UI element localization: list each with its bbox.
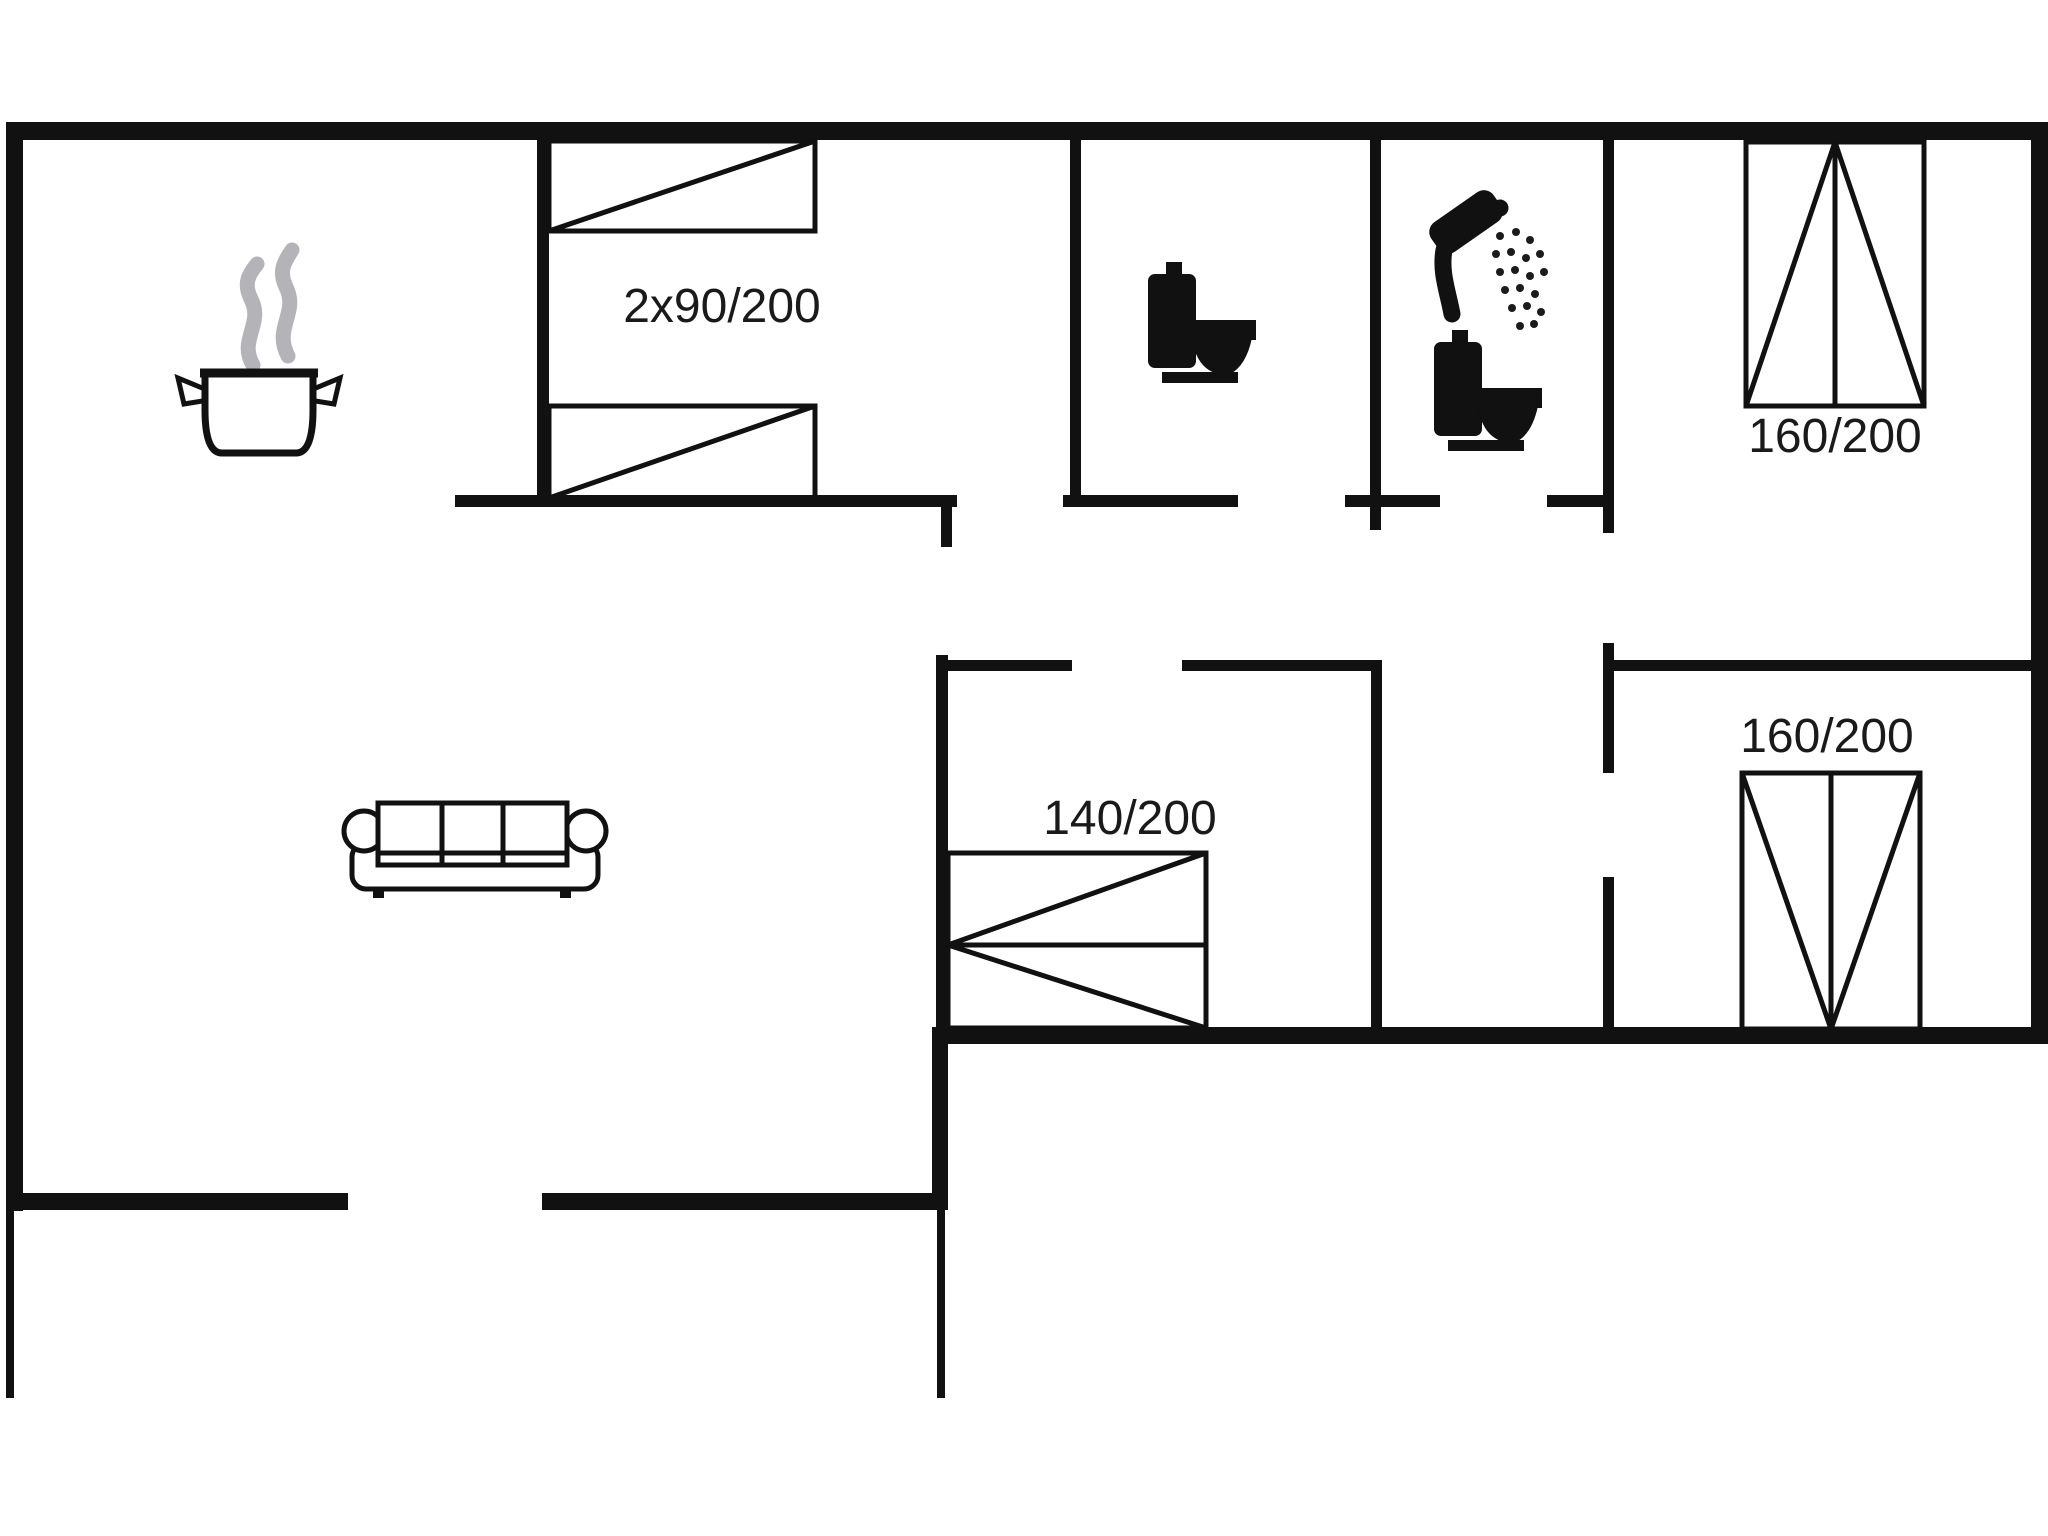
floor-plan: 2x90/200 160/200 160/200 140/200	[0, 0, 2048, 1536]
wall-rightrooms-divider	[1603, 660, 2040, 671]
wall-centerroom-right	[1371, 660, 1382, 1031]
bed-label-top-left: 2x90/200	[623, 280, 821, 333]
sofa-armrest-right	[566, 811, 606, 851]
bed-label-top-right: 160/200	[1748, 410, 1922, 463]
bed-double-top-right	[1746, 142, 1924, 406]
bed-single-a	[549, 141, 815, 231]
cooking-pot-icon	[178, 250, 340, 453]
wall-wc-bottom	[1063, 495, 1238, 507]
wall-bottom-connector	[932, 1027, 948, 1210]
wall-rightrooms-left-top	[1603, 140, 1614, 533]
wall-rightrooms-left-bottom	[1603, 877, 1614, 1031]
bed-label-center: 140/200	[1043, 792, 1217, 845]
interior-walls	[455, 140, 2040, 1031]
wall-bottom-left-b	[542, 1193, 948, 1210]
steam-wave-1	[247, 264, 257, 365]
wall-hallway-bottom-b	[1182, 660, 1377, 671]
wall-hallway-bottom-a	[936, 660, 1072, 671]
wall-bathroom-bottom-left	[1345, 495, 1440, 507]
terrace-lines	[6, 1210, 945, 1398]
shower-icon	[1425, 185, 1548, 330]
bed-label-mid-right: 160/200	[1740, 710, 1914, 763]
floor-plan-canvas: 2x90/200 160/200 160/200 140/200	[0, 0, 2048, 1536]
bed-double-center	[948, 853, 1206, 1028]
sofa-icon	[344, 803, 606, 898]
wall-bottom-left-a	[6, 1193, 348, 1210]
bed-single-b	[549, 406, 815, 498]
terrace-edge-right	[937, 1210, 945, 1398]
toilet-icon	[1148, 262, 1256, 383]
pot-body	[205, 374, 313, 453]
wall-right	[2031, 122, 2048, 1044]
steam-wave-2	[282, 250, 292, 356]
terrace-edge-left	[6, 1210, 14, 1398]
shower-spray	[1492, 228, 1548, 330]
sofa-back	[378, 803, 567, 865]
wall-bedroom1-door-jamb	[941, 503, 952, 547]
wall-left	[6, 122, 23, 1211]
wall-top	[6, 122, 2048, 140]
wall-wc-left	[1070, 140, 1081, 506]
toilet-icon-2	[1434, 330, 1542, 451]
bed-double-mid-right	[1742, 773, 1920, 1029]
wall-wc-bathroom-divider	[1370, 140, 1381, 530]
